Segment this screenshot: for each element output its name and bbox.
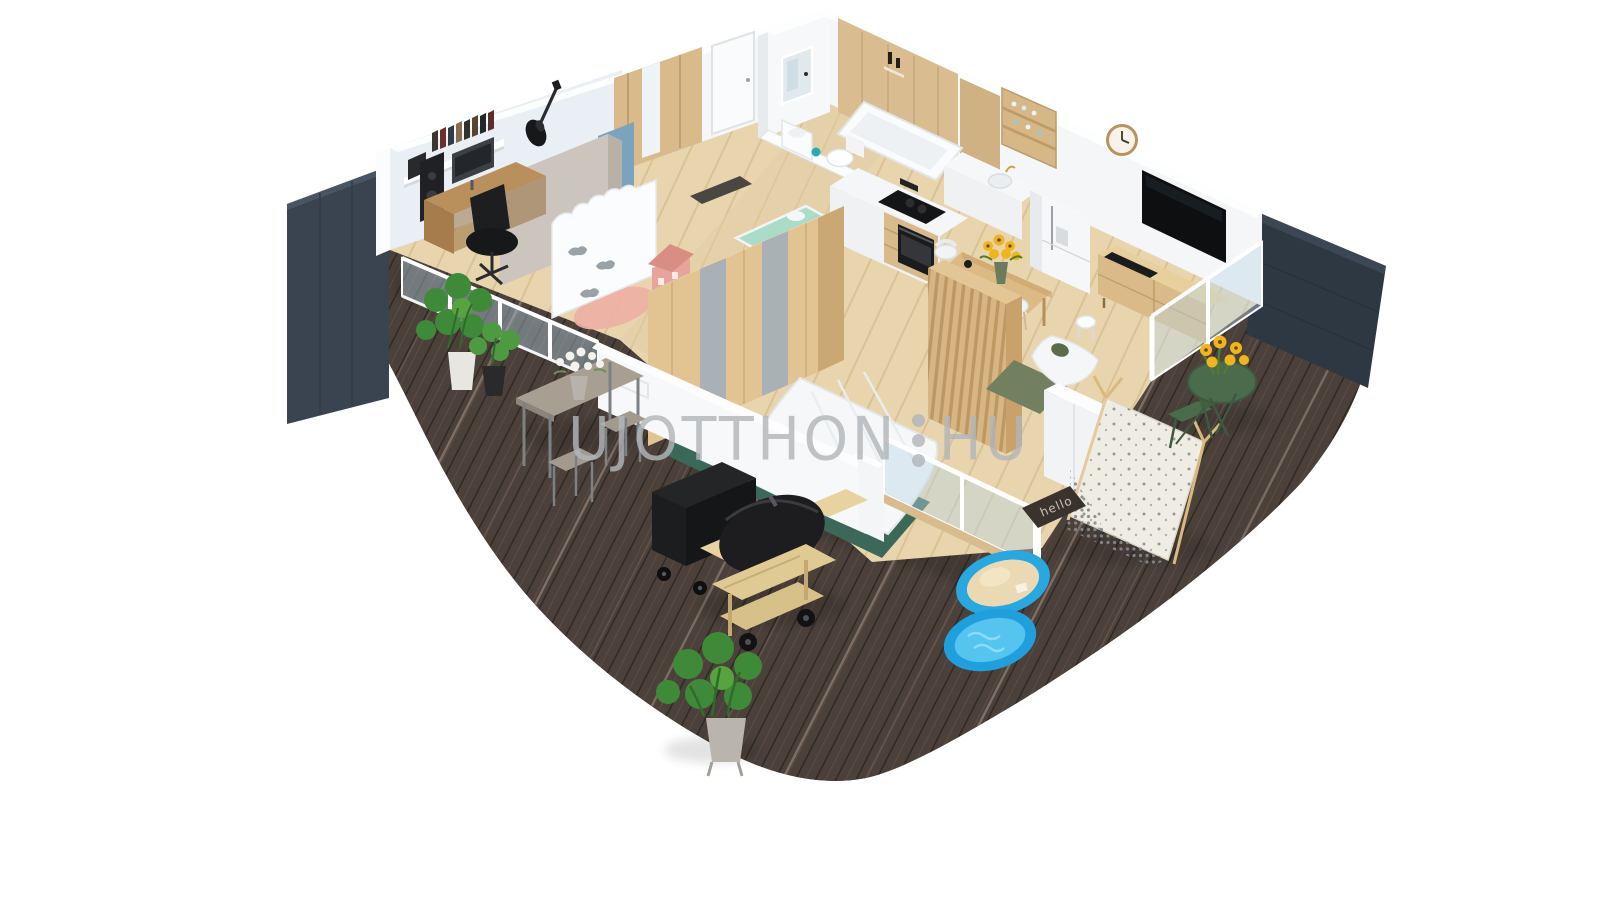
navy-panel-left: [287, 166, 389, 424]
scene-canvas: hello: [0, 0, 1600, 900]
wall-clock: [1108, 126, 1137, 155]
kitchen-sink: [989, 174, 1012, 188]
lit-mirror: [782, 47, 812, 104]
entry-door: [712, 32, 754, 134]
floorplan-render: hello UJOTTHON HU: [0, 0, 1600, 900]
